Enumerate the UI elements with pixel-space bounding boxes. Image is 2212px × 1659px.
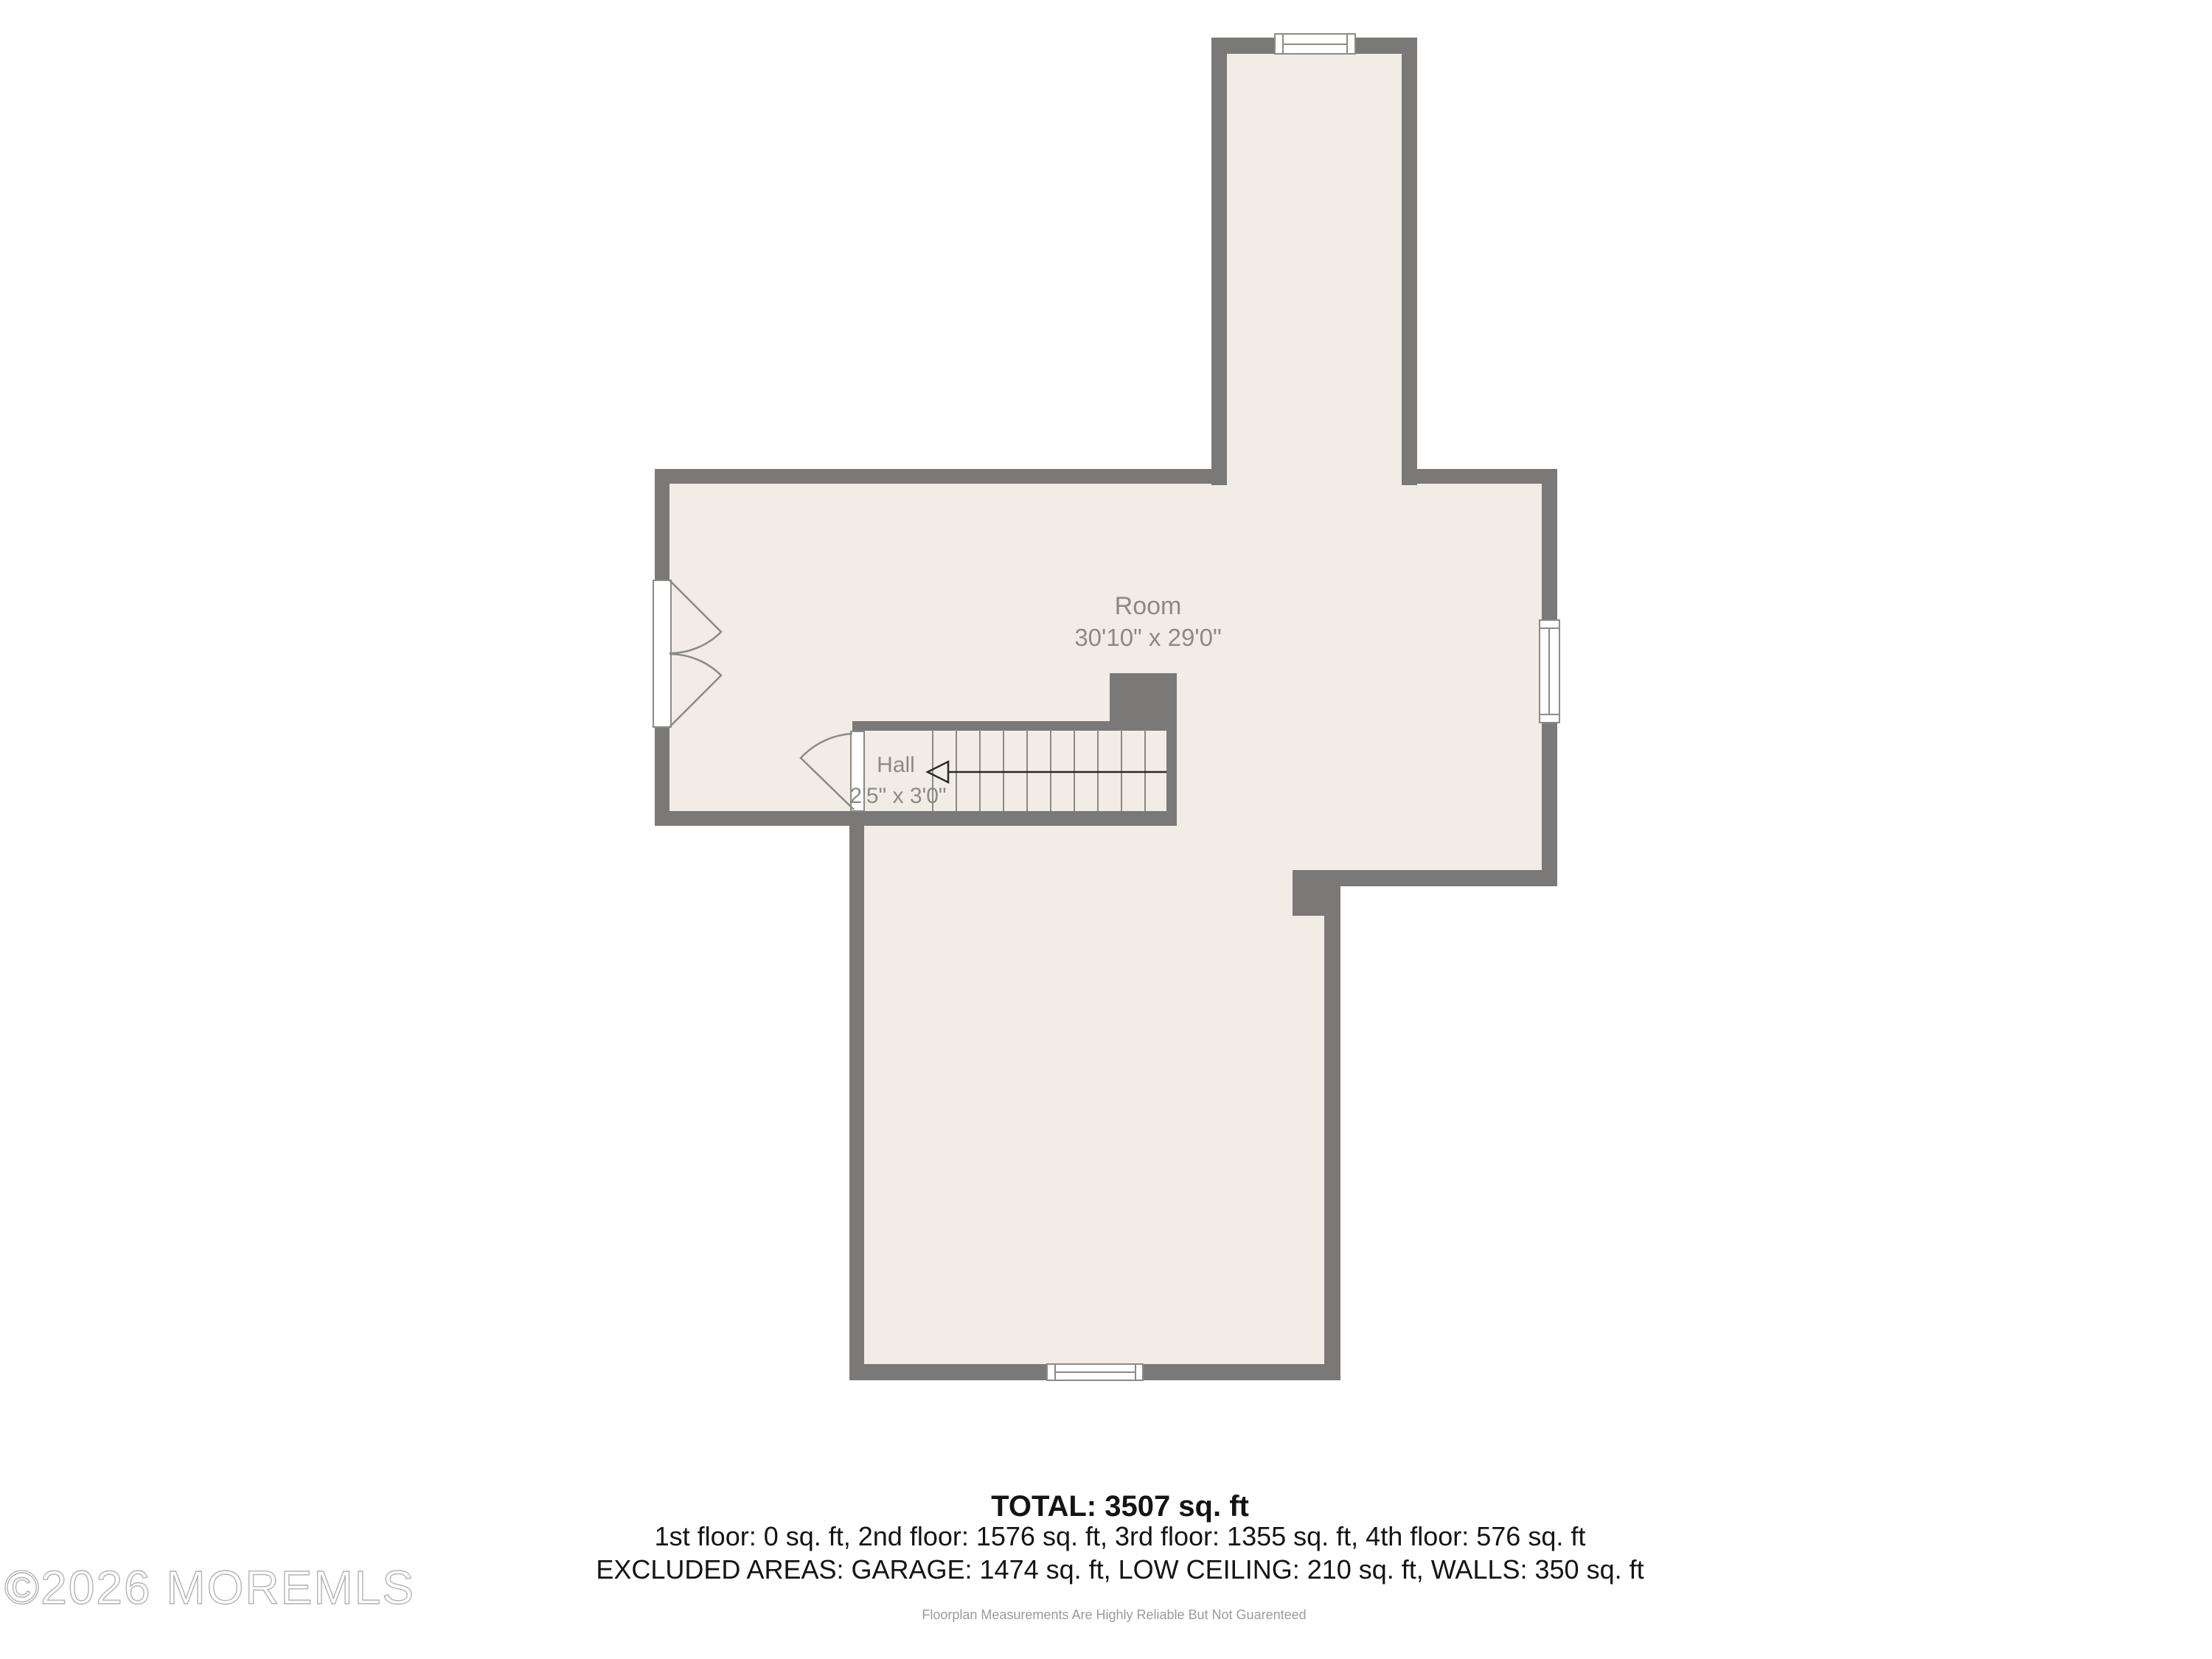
wall-stair-block [1110,673,1177,731]
wall-step-block [1293,870,1340,916]
total-area-text: TOTAL: 3507 sq. ft [14,1489,2212,1523]
wall-lower-right [1324,916,1340,1380]
wall-main-top-right [1402,469,1557,484]
mls-watermark: ©2026 MOREMLS [4,1560,415,1615]
bottom-window-icon [1047,1364,1143,1380]
room-label: Room [1115,592,1182,620]
wall-tower-right [1402,38,1417,485]
hall-label: Hall [877,753,915,777]
right-window-icon [1540,620,1559,723]
floor-areas-text: 1st floor: 0 sq. ft, 2nd floor: 1576 sq.… [14,1521,2212,1551]
wall-hall-door-stub [852,721,864,731]
top-window-icon [1275,34,1355,54]
floor-plan: Room 30'10" x 29'0" Hall 2'5" x 3'0" [0,0,2212,1659]
hall-dimensions: 2'5" x 3'0" [849,784,946,808]
wall-main-top-left [655,469,1227,484]
wall-lower-left [849,811,864,1380]
wall-tower-left [1211,38,1227,485]
wall-stair-right [1166,728,1177,811]
room-dimensions: 30'10" x 29'0" [1074,624,1221,651]
wall-main-bottom-left [655,811,1177,826]
